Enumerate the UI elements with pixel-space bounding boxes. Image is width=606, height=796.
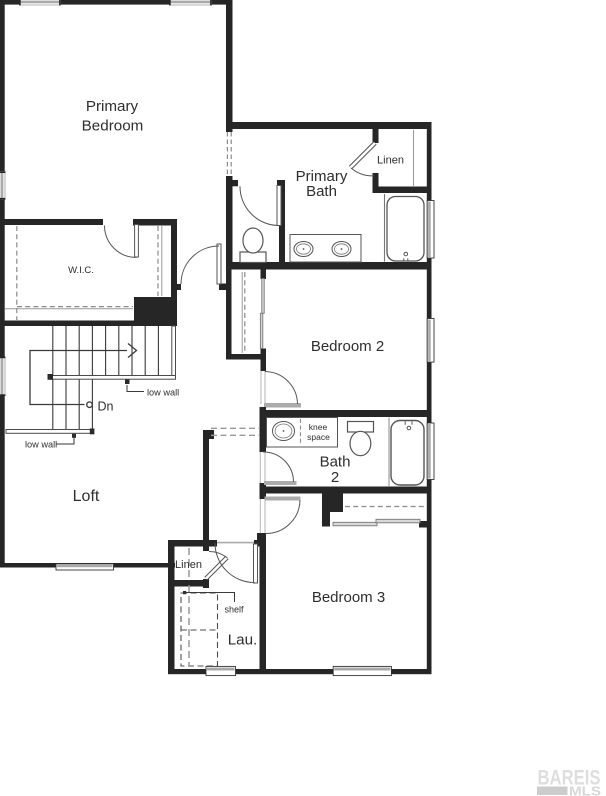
svg-text:low wall: low wall <box>147 388 179 398</box>
svg-text:Linen: Linen <box>377 155 404 167</box>
svg-text:Bedroom 3: Bedroom 3 <box>312 589 385 606</box>
svg-text:space: space <box>307 432 330 442</box>
svg-text:Primary: Primary <box>86 98 139 115</box>
svg-text:2: 2 <box>331 469 339 486</box>
svg-text:knee: knee <box>309 422 328 432</box>
svg-text:MLS: MLS <box>569 785 601 796</box>
svg-text:low wall: low wall <box>25 440 57 450</box>
svg-text:Bath: Bath <box>306 183 337 200</box>
svg-text:Bath: Bath <box>320 454 351 471</box>
svg-text:Linen: Linen <box>175 559 202 571</box>
svg-text:W.I.C.: W.I.C. <box>68 265 94 276</box>
svg-text:shelf: shelf <box>224 605 244 615</box>
svg-text:Lau.: Lau. <box>228 632 258 649</box>
svg-text:Dn: Dn <box>98 400 114 414</box>
svg-text:Loft: Loft <box>73 488 100 505</box>
svg-text:Bedroom: Bedroom <box>82 118 144 135</box>
svg-text:Bedroom 2: Bedroom 2 <box>311 338 384 355</box>
